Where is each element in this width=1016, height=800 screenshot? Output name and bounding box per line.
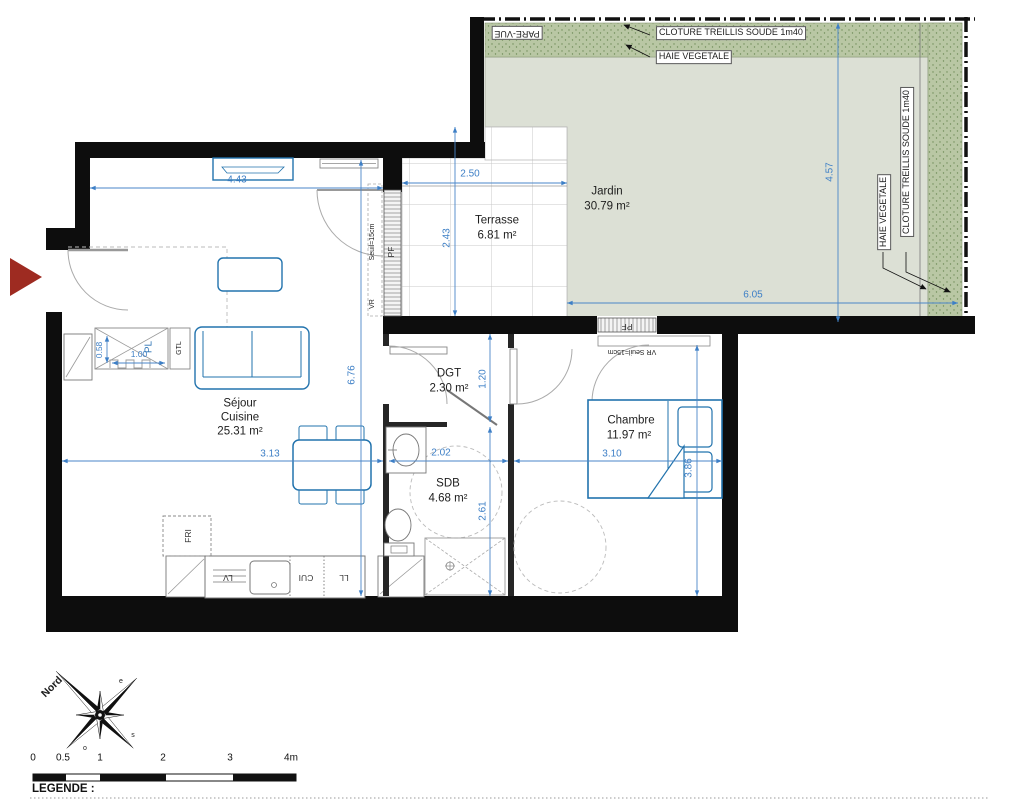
dining-set [293,426,371,504]
gtl-label: GTL [176,341,184,355]
scale-tick-2: 2 [160,752,166,764]
shower [425,538,505,595]
scale-tick-1: 1 [97,752,103,764]
scale-tick-05: 0.5 [56,752,70,764]
dgt-door-leaf [390,347,447,354]
legend-title: LEGENDE : [32,783,95,795]
dim-chambre-depth: 3.86 [683,458,695,477]
sejour-name-line2: Cuisine [221,411,259,424]
coffee-table [218,258,282,291]
tv-unit [213,158,293,180]
sejour-name-line1: Séjour [223,397,256,410]
compass-west-label: o [83,745,87,753]
dim-chambre-width: 3.10 [602,448,621,460]
dim-sejour-width-top: 4.43 [227,174,246,186]
dim-sejour-height: 6.76 [346,365,358,384]
dim-jardin-width: 6.05 [743,289,762,301]
haie-top-label: HAIE VEGETALE [656,50,732,64]
scale-tick-4m: 4m [284,752,298,764]
floor-plan-drawing [0,0,1016,800]
cloture-right-label: CLOTURE TREILLIS SOUDE 1m40 [900,87,914,237]
closet-pl-label: PL [143,341,155,353]
washer-label: LL [339,572,348,582]
dgt-name: DGT [437,367,461,380]
floor-plan: PARE-VUE CLOTURE TREILLIS SOUDE 1m40 HAI… [0,0,1016,800]
dim-terrasse-depth: 2.43 [441,228,453,247]
scale-tick-3: 3 [227,752,233,764]
sejour-window-pf-label: PF [387,247,397,258]
sejour-radiator [320,159,378,168]
hedge-strip-right [928,23,962,320]
fridge-label: FRI [184,529,194,543]
chambre-name: Chambre [607,414,654,427]
scale-tick-0: 0 [30,752,36,764]
entrance-arrow-icon [10,258,42,296]
toilet [384,509,414,556]
dgt-area: 2.30 m² [430,382,469,395]
cloture-top-label: CLOTURE TREILLIS SOUDE 1m40 [656,26,806,40]
terrasse-name: Terrasse [475,214,519,227]
dim-jardin-depth: 4.57 [824,162,836,181]
vr-label: VR [369,299,377,309]
haie-right-label: HAIE VEGETALE [877,174,891,250]
chambre-door-leaf [510,349,517,404]
sdb-area: 4.68 m² [429,492,468,505]
chambre-vr-seuil-label: VR Seuil=15cm [608,347,656,355]
chambre-window-pf-label: PF [622,321,633,331]
jardin-area: 30.79 m² [584,200,629,213]
jardin-name: Jardin [591,185,622,198]
dishwasher-label: LV [223,572,233,582]
dim-entry-niche-depth: 0.58 [95,342,105,359]
seuil-label: Seuil=15cm [369,224,377,261]
cooker-label: CUI [299,572,314,582]
sdb-name: SDB [436,477,460,490]
dim-dgt-depth: 1.20 [477,369,489,388]
washbasin [386,427,426,473]
terrasse-area: 6.81 m² [478,229,517,242]
scale-bar [33,774,296,781]
compass-east-label: e [119,678,123,686]
dim-sdb-width: 2.02 [431,447,450,459]
chambre-area: 11.97 m² [607,429,652,442]
dim-sdb-depth: 2.61 [477,501,489,520]
pare-vue-label: PARE-VUE [491,26,542,40]
sejour-area: 25.31 m² [217,425,262,438]
sofa [195,327,309,389]
compass-rose-icon [56,671,137,748]
kitchen-sink [250,561,290,594]
dim-sejour-width-mid: 3.13 [260,448,279,460]
compass-south-label: s [131,732,135,740]
dim-terrasse-width: 2.50 [460,168,479,180]
chambre-radiator [598,336,710,346]
